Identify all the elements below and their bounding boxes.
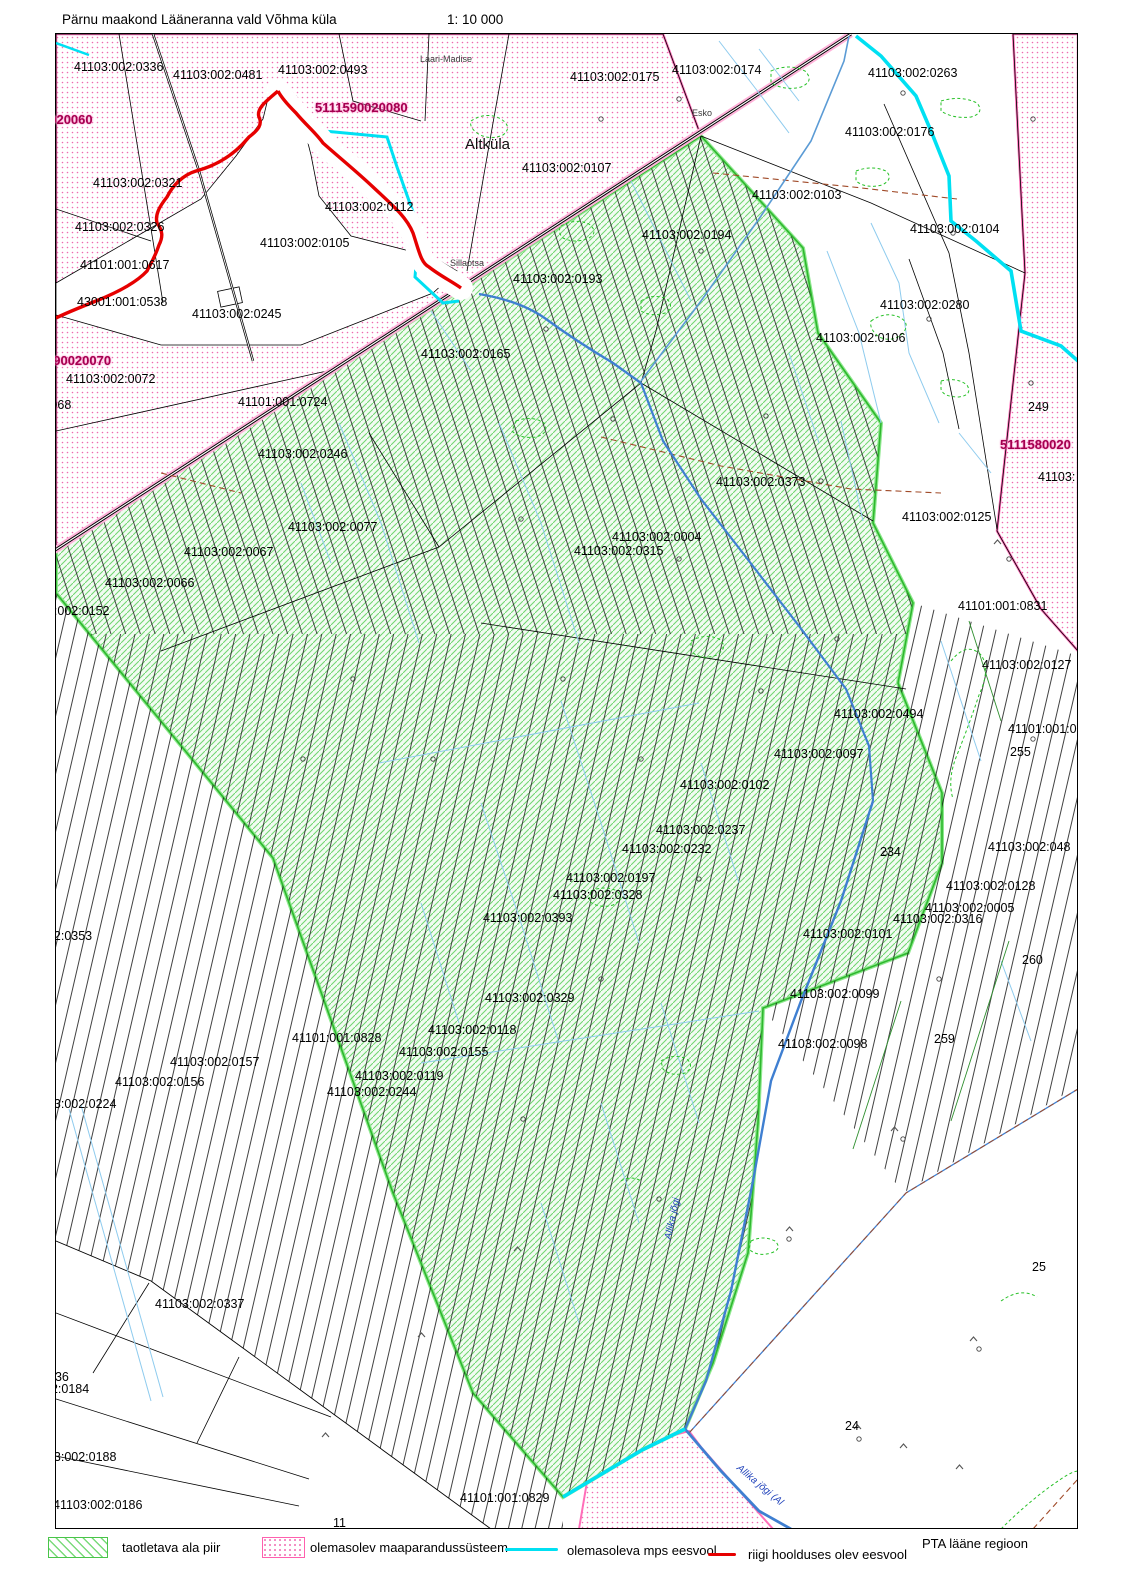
legend-red-line bbox=[708, 1553, 736, 1556]
parcel-number-label: 22 bbox=[40, 193, 54, 207]
legend-applied-area-label: taotletava ala piir bbox=[122, 1540, 220, 1555]
legend-cyan-label: olemasoleva mps eesvool bbox=[567, 1543, 717, 1558]
legend-drainage-swatch bbox=[262, 1537, 305, 1558]
map-drawing bbox=[56, 34, 1077, 1528]
legend-red-label: riigi hoolduses olev eesvool bbox=[748, 1547, 907, 1562]
legend-cyan-line bbox=[505, 1548, 558, 1551]
legend-region-note: PTA lääne regioon bbox=[922, 1536, 1028, 1551]
page-title: Pärnu maakond Lääneranna vald Võhma küla bbox=[62, 12, 337, 27]
map-document-page: { "header": { "title": "Pärnu maakond Lä… bbox=[0, 0, 1123, 1587]
legend-drainage-label: olemasolev maaparandussüsteem bbox=[310, 1540, 508, 1555]
map-canvas bbox=[55, 33, 1078, 1529]
parcel-number-label: 79 bbox=[40, 1270, 54, 1284]
map-scale: 1: 10 000 bbox=[447, 12, 503, 27]
legend-applied-area-swatch bbox=[48, 1537, 108, 1558]
